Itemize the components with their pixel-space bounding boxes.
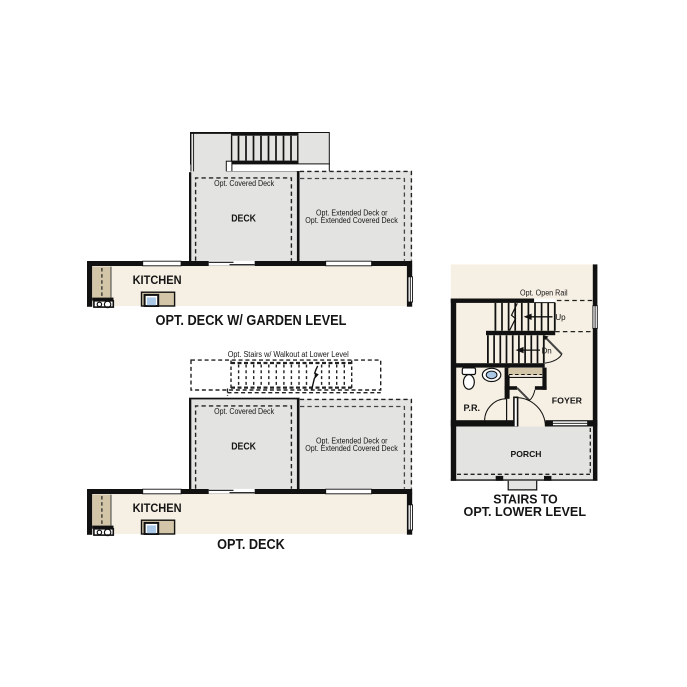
svg-text:Opt. Stairs w/ Walkout at Lowe: Opt. Stairs w/ Walkout at Lower Level	[228, 350, 349, 359]
svg-text:Opt. Covered Deck: Opt. Covered Deck	[214, 179, 275, 188]
svg-text:Opt. Covered Deck: Opt. Covered Deck	[214, 407, 275, 416]
svg-text:DECK: DECK	[231, 213, 256, 224]
svg-text:PORCH: PORCH	[511, 449, 542, 459]
svg-text:OPT. DECK W/ GARDEN LEVEL: OPT. DECK W/ GARDEN LEVEL	[156, 313, 347, 329]
svg-text:Opt. Extended Covered Deck: Opt. Extended Covered Deck	[305, 216, 398, 225]
svg-text:Opt. Open Rail: Opt. Open Rail	[520, 289, 568, 298]
svg-text:Opt. Extended Covered Deck: Opt. Extended Covered Deck	[305, 444, 398, 453]
svg-text:DECK: DECK	[231, 441, 256, 452]
svg-text:OPT. LOWER LEVEL: OPT. LOWER LEVEL	[464, 505, 587, 519]
svg-text:P.R.: P.R.	[464, 403, 481, 413]
svg-text:Dn: Dn	[542, 346, 552, 355]
svg-text:Up: Up	[555, 313, 566, 322]
svg-text:OPT. DECK: OPT. DECK	[217, 537, 285, 553]
svg-text:FOYER: FOYER	[552, 395, 582, 405]
svg-text:KITCHEN: KITCHEN	[133, 275, 182, 287]
svg-text:KITCHEN: KITCHEN	[133, 503, 182, 515]
